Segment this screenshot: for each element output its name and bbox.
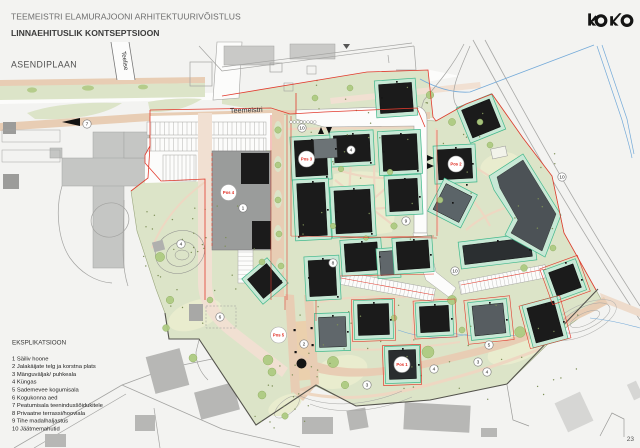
svg-text:8 Privaatne terrassi/hooviala: 8 Privaatne terrassi/hooviala — [12, 411, 86, 417]
svg-text:4: 4 — [350, 148, 353, 154]
svg-text:9: 9 — [405, 219, 408, 225]
svg-text:2 Jalakäijate telg ja korstna: 2 Jalakäijate telg ja korstna plats — [12, 364, 96, 370]
svg-text:Pos 1: Pos 1 — [396, 362, 408, 367]
svg-text:10: 10 — [559, 175, 565, 181]
svg-text:10 Jäätmemahutid: 10 Jäätmemahutid — [12, 427, 60, 433]
svg-text:7 Peatumisala teenindusšõiduki: 7 Peatumisala teenindusšõidukitele — [12, 403, 103, 409]
svg-text:4: 4 — [486, 370, 489, 376]
svg-text:10: 10 — [452, 269, 458, 275]
svg-text:3: 3 — [477, 360, 480, 366]
svg-text:23: 23 — [627, 436, 635, 443]
svg-text:Pos 3: Pos 3 — [301, 157, 313, 162]
svg-text:EKSPLIKATSIOON: EKSPLIKATSIOON — [12, 340, 67, 347]
svg-text:2: 2 — [303, 342, 306, 348]
svg-text:9 Tihe madalhaljastus: 9 Tihe madalhaljastus — [12, 419, 68, 425]
svg-text:1: 1 — [242, 206, 245, 212]
svg-text:LINNAEHITUSLIK KONTSEPTSIOON: LINNAEHITUSLIK KONTSEPTSIOON — [11, 28, 160, 38]
svg-text:Pos 5: Pos 5 — [273, 333, 285, 338]
svg-text:ASENDIPLAAN: ASENDIPLAAN — [11, 60, 77, 70]
svg-text:4 Küngas: 4 Küngas — [12, 380, 37, 386]
svg-text:Pos 2: Pos 2 — [450, 162, 462, 167]
svg-text:6: 6 — [219, 315, 222, 321]
svg-text:4: 4 — [433, 367, 436, 373]
svg-text:10: 10 — [299, 126, 305, 132]
svg-text:3 Mänguväljak/ puhkeala: 3 Mänguväljak/ puhkeala — [12, 372, 77, 378]
svg-text:1 Säiliv hoone: 1 Säiliv hoone — [12, 356, 48, 362]
svg-text:5: 5 — [488, 343, 491, 349]
svg-text:4: 4 — [180, 242, 183, 248]
svg-text:Teemeistri: Teemeistri — [230, 105, 263, 115]
svg-text:7: 7 — [86, 122, 89, 128]
svg-text:6 Kogukonna aed: 6 Kogukonna aed — [12, 395, 57, 401]
svg-text:8: 8 — [332, 261, 335, 267]
svg-text:TEEMEISTRI ELAMURAJOONI ARHITE: TEEMEISTRI ELAMURAJOONI ARHITEKTUURIVÕIS… — [11, 12, 241, 22]
svg-text:5 Sademevee kogumisala: 5 Sademevee kogumisala — [12, 388, 79, 394]
svg-text:3: 3 — [366, 383, 369, 389]
svg-text:Pos 4: Pos 4 — [223, 190, 235, 195]
